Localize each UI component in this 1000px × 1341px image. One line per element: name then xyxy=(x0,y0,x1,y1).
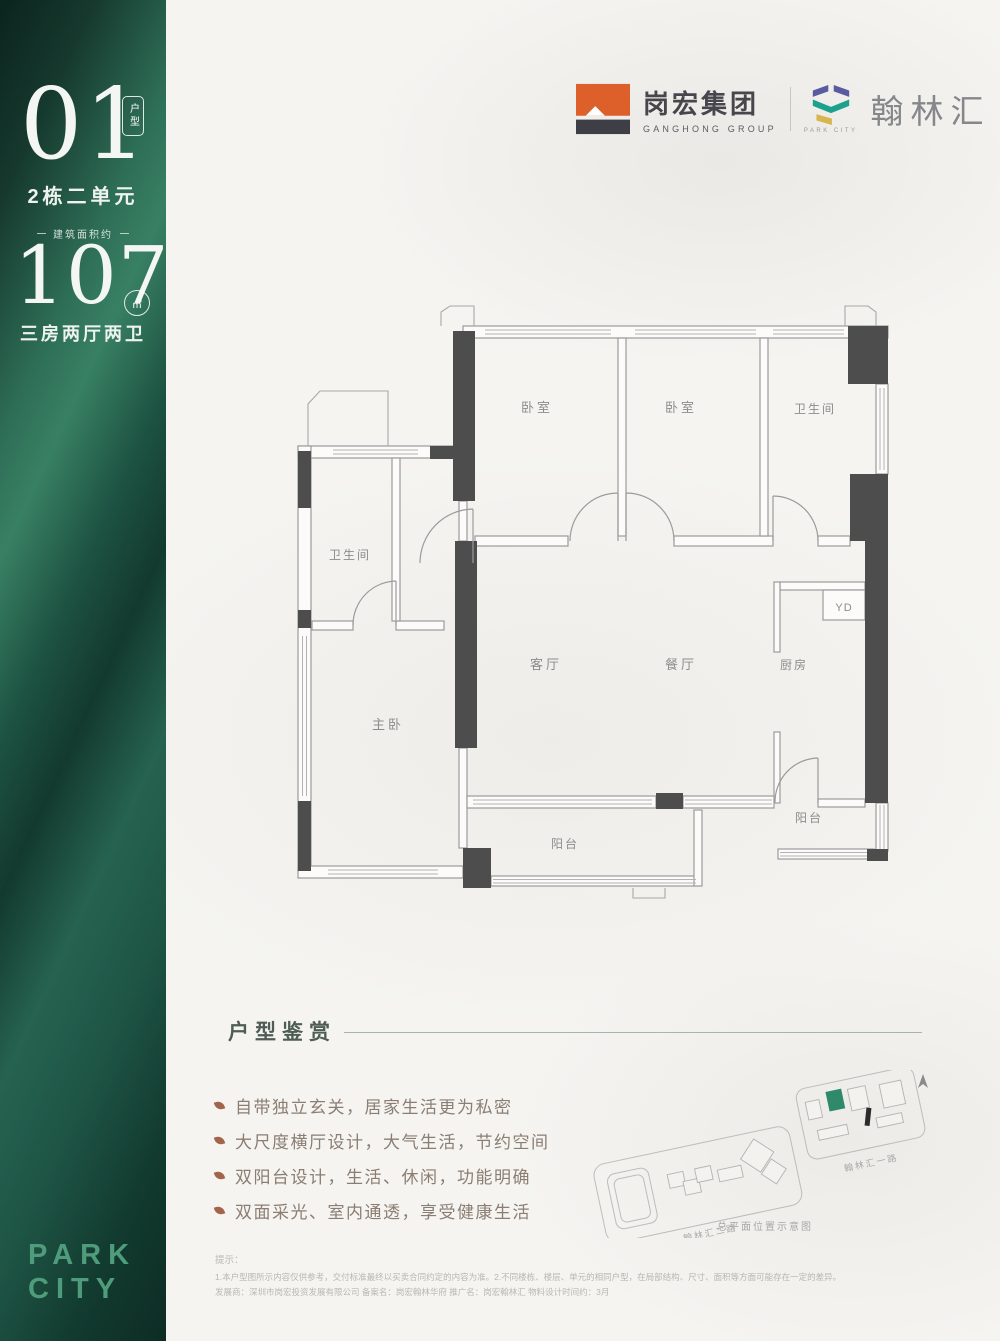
sidebar: 01 户型 2栋二单元 建筑面积约 107 ㎡ 三房两厅两卫 PARK CITY xyxy=(0,0,166,1341)
disclaimer-line-2: 发展商：深圳市岗宏投资发展有限公司 备案名：岗宏翰林华府 推广名：岗宏翰林汇 物… xyxy=(215,1285,841,1300)
room-label-bedroom-1: 卧室 xyxy=(521,400,553,415)
room-label-bathroom-top: 卫生间 xyxy=(794,402,836,416)
city-word: CITY xyxy=(28,1272,136,1306)
room-label-balcony-center: 阳台 xyxy=(551,836,579,851)
leaf-bullet-icon xyxy=(214,1205,226,1217)
developer-name-en: GANGHONG GROUP xyxy=(643,124,777,134)
north-arrow-icon xyxy=(918,1074,928,1088)
developer-name-cn: 岗宏集团 xyxy=(643,84,777,121)
features-title: 户型鉴赏 xyxy=(228,1016,336,1046)
disclaimer: 提示： 1.本户型图所示内容仅供参考，交付标准最终以买卖合同约定的内容为准。2.… xyxy=(215,1252,841,1300)
room-label-master-bedroom: 主卧 xyxy=(372,717,404,732)
ganghong-logo-text: 岗宏集团 GANGHONG GROUP xyxy=(643,84,777,134)
unit-type-badge: 户型 xyxy=(122,96,144,136)
room-label-kitchen: 厨房 xyxy=(780,657,808,672)
room-label-bedroom-2: 卧室 xyxy=(665,400,697,415)
unit-type-badge-label: 户型 xyxy=(126,103,141,129)
room-label-bathroom-left: 卫生间 xyxy=(329,548,371,562)
poster-page: 01 户型 2栋二单元 建筑面积约 107 ㎡ 三房两厅两卫 PARK CITY… xyxy=(0,0,1000,1341)
room-label-living-room: 客厅 xyxy=(530,657,562,672)
feature-item: 大尺度横厅设计，大气生活，节约空间 xyxy=(215,1128,550,1153)
park-city-wordmark: PARK CITY xyxy=(28,1238,136,1306)
park-city-logo-icon xyxy=(811,84,851,126)
leaf-bullet-icon xyxy=(214,1170,226,1182)
room-label-dining-room: 餐厅 xyxy=(665,657,697,672)
disclaimer-heading: 提示： xyxy=(215,1252,841,1266)
feature-item: 双面采光、室内通透，享受健康生活 xyxy=(215,1198,531,1223)
ganghong-logo-icon xyxy=(576,83,630,135)
room-label-balcony-right: 阳台 xyxy=(795,810,823,825)
area-unit-circle: ㎡ xyxy=(124,290,150,316)
header-logos: 岗宏集团 GANGHONG GROUP PARK CITY 翰林汇 xyxy=(576,80,991,138)
building-unit-label: 2栋二单元 xyxy=(0,180,166,209)
project-name: 翰林汇 xyxy=(871,85,991,133)
room-label-duct: YD xyxy=(835,602,852,614)
road-label-right: 翰林汇一路 xyxy=(843,1151,899,1173)
site-map-caption: 总平面位置示意图 xyxy=(717,1220,813,1233)
logo-divider xyxy=(790,87,791,131)
leaf-bullet-icon xyxy=(214,1100,226,1112)
layout-text: 三房两厅两卫 xyxy=(0,320,166,346)
park-word: PARK xyxy=(28,1238,136,1272)
feature-item-text: 双面采光、室内通透，享受健康生活 xyxy=(235,1198,531,1223)
park-city-logo-block: PARK CITY xyxy=(804,84,858,134)
feature-item-text: 自带独立玄关，居家生活更为私密 xyxy=(235,1093,513,1118)
feature-item-text: 大尺度横厅设计，大气生活，节约空间 xyxy=(235,1128,550,1153)
floor-plan: 卧室 卧室 卫生间 卫生间 主卧 客厅 餐厅 厨房 YD 阳台 阳台 xyxy=(278,296,912,900)
feature-item: 双阳台设计，生活、休闲，功能明确 xyxy=(215,1163,531,1188)
features-title-rule xyxy=(344,1032,922,1033)
feature-item-text: 双阳台设计，生活、休闲，功能明确 xyxy=(235,1163,531,1188)
site-map: 翰林汇二路 翰林汇一路 总平面位置示意图 xyxy=(575,1070,935,1238)
disclaimer-line-1: 1.本户型图所示内容仅供参考，交付标准最终以买卖合同约定的内容为准。2.不同楼栋… xyxy=(215,1270,841,1285)
feature-item: 自带独立玄关，居家生活更为私密 xyxy=(215,1093,513,1118)
leaf-bullet-icon xyxy=(214,1135,226,1147)
area-value-row: 107 ㎡ xyxy=(14,236,154,316)
park-city-caption: PARK CITY xyxy=(804,128,858,134)
